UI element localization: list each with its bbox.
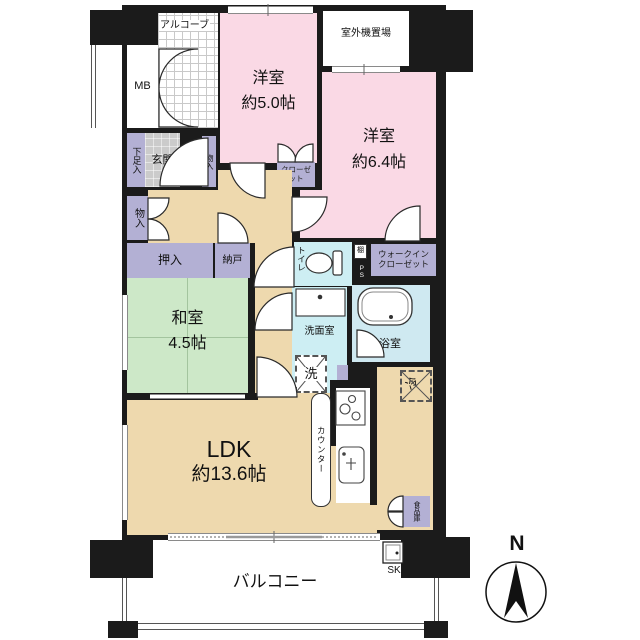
outdoor-unit-label: 室外機置場: [322, 28, 410, 40]
shoe-cabinet-label: 下足入: [132, 147, 141, 174]
meter-box-label: MB: [134, 80, 151, 93]
washroom-label: 洗面室: [292, 326, 347, 338]
pantry-label: 食品庫: [413, 501, 420, 522]
storage-small: 物入: [202, 136, 216, 187]
oshiire-label: 押入: [158, 254, 182, 268]
pantry: 食品庫: [403, 496, 430, 527]
floor-plan: アルコーブ MB 洋室 約5.0帖 室外機置場 洋室 約6.4帖 クローゼット …: [0, 0, 640, 640]
corner-block-top-right: [410, 10, 473, 72]
kitchen-counter: カウンター: [311, 393, 331, 507]
alcove-label: アルコーブ: [159, 20, 210, 32]
balcony-post-right: [424, 621, 448, 638]
corner-block-bottom-left: [90, 540, 153, 578]
washitsu-ldk-sliding: [150, 394, 245, 399]
washitsu-name: 和室: [127, 310, 248, 328]
hallway-mid: [218, 170, 292, 243]
compass-north-label: N: [504, 532, 530, 556]
window-ldk-balcony: [168, 533, 380, 541]
compass-icon: [486, 562, 546, 622]
bedroom1-area: 約5.0帖: [220, 95, 317, 113]
storage-small-label: 物入: [205, 154, 213, 170]
window-bedroom1-top: [228, 6, 313, 14]
counter-label: カウンター: [317, 426, 326, 474]
corner-block-bottom-right-ext: [438, 537, 470, 578]
entrance-label: 玄関: [152, 154, 174, 167]
nando-label: 納戸: [223, 255, 243, 267]
window-bedroom2-top: [332, 66, 400, 73]
oshiire: 押入: [127, 243, 213, 278]
balcony-rail-bottom: [110, 623, 448, 630]
kitchen-floor: [336, 388, 370, 503]
walk-in-closet: ウォークインクローゼット: [371, 244, 436, 276]
balcony-post-left: [108, 621, 138, 638]
meter-box: MB: [127, 45, 158, 128]
walk-in-closet-label: ウォークインクローゼット: [375, 250, 433, 270]
balcony-rail-right: [434, 578, 439, 623]
corner-block-bottom-right: [401, 526, 438, 578]
balcony-rail-left: [122, 578, 127, 623]
nando: 納戸: [215, 243, 250, 278]
sk-sink-icon: [383, 542, 403, 563]
shoe-cabinet: 下足入: [127, 133, 145, 187]
kitchen-right-wall: [370, 385, 377, 505]
pipe-space-label: PS: [358, 265, 365, 279]
washer-space: 洗: [295, 355, 327, 393]
entrance-hall: 玄関: [145, 133, 180, 187]
washer-label: 洗: [303, 367, 318, 382]
ldk-area: 約13.6帖: [127, 464, 331, 486]
toilet-label: トイレ: [297, 246, 306, 272]
bedroom2-area: 約6.4帖: [322, 154, 436, 172]
window-washitsu-left: [122, 295, 128, 370]
window-ldk-left: [122, 425, 128, 520]
hallway-corridor: [255, 243, 292, 397]
ldk-name: LDK: [127, 436, 331, 462]
corner-block-top-left: [90, 10, 153, 45]
pipe-space: PS: [355, 262, 367, 281]
room-bedroom2-ext: [300, 190, 322, 238]
bedroom1-name: 洋室: [220, 70, 317, 88]
sk-label: SK: [382, 565, 406, 577]
storage-left: 物入: [127, 196, 148, 240]
bathroom-label: 浴室: [365, 338, 415, 351]
shelf-label: 棚: [357, 247, 364, 255]
porch-rail: [91, 45, 96, 128]
shelf: 棚: [354, 244, 367, 259]
bedroom2-name: 洋室: [322, 128, 436, 146]
room-toilet: トイレ: [294, 242, 352, 286]
balcony-label: バルコニー: [180, 572, 370, 592]
washitsu-area: 4.5帖: [127, 335, 248, 353]
small-cabinet: [337, 365, 348, 380]
storage-left-label: 物入: [133, 208, 143, 228]
